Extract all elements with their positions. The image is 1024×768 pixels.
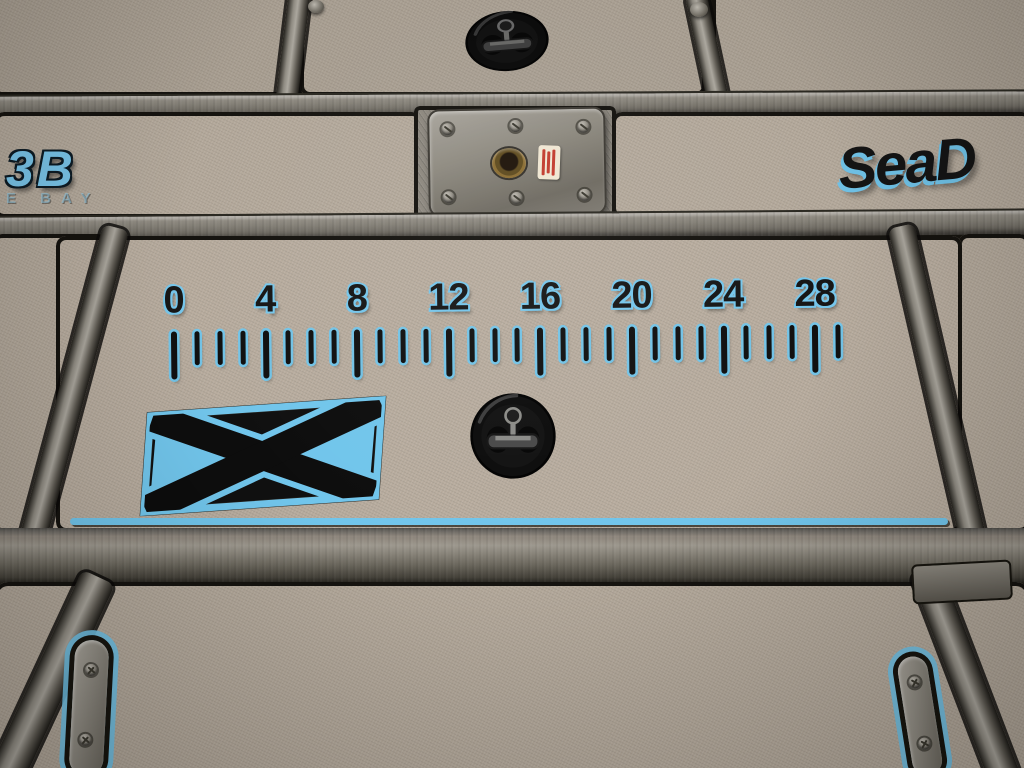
ruler-minor-tick [767, 325, 772, 359]
ruler-minor-tick [194, 331, 199, 365]
screw-icon [443, 191, 455, 203]
ruler-number: 28 [794, 273, 835, 316]
screw-icon [85, 664, 98, 677]
ruler-major-tick [263, 330, 270, 378]
deck-panel-top-left [0, 0, 292, 96]
screw-icon [509, 120, 521, 132]
hinge-strip-left [68, 639, 109, 768]
screw-icon [511, 192, 523, 204]
ruler-labels: 0481216202428 [173, 273, 837, 324]
ruler-major-tick [629, 327, 636, 375]
ruler-ticks [174, 325, 839, 392]
ruler-minor-tick [744, 325, 749, 359]
topo-contours [0, 0, 292, 96]
ruler-major-tick [812, 325, 819, 373]
ruler-number: 0 [163, 279, 184, 322]
topo-contours [712, 0, 1024, 96]
ruler-minor-tick [606, 327, 611, 361]
ruler-major-tick [720, 326, 727, 374]
ruler-number: 16 [520, 275, 561, 318]
ruler-minor-tick [217, 331, 222, 365]
ruler-minor-tick [675, 326, 680, 360]
ruler-number: 20 [611, 274, 652, 317]
ruler-major-tick [171, 331, 178, 379]
ruler-minor-tick [492, 328, 497, 362]
ruler-minor-tick [561, 327, 566, 361]
boat-deck-photo: 3B VE BAY SeaD [0, 0, 1024, 768]
deck-panel-top-right [712, 0, 1024, 96]
seat-base-recess [414, 106, 616, 220]
screw-icon [578, 189, 590, 201]
ruler-minor-tick [309, 330, 314, 364]
seat-base-plate [427, 106, 607, 217]
ruler-number: 8 [346, 277, 367, 320]
fish-ruler: 0481216202428 [173, 273, 838, 398]
deck-panel-main-ruler: 0481216202428 [56, 236, 962, 532]
ruler-minor-tick [423, 329, 428, 363]
center-hatch-t-handle-latch [468, 392, 558, 480]
ruler-minor-tick [584, 327, 589, 361]
screw-icon [441, 123, 453, 135]
ruler-minor-tick [790, 325, 795, 359]
deck-panel-bottom [0, 582, 1024, 768]
panel-edge-contour-line [70, 518, 948, 525]
ruler-minor-tick [515, 328, 520, 362]
frame-step-bottom-right [911, 559, 1013, 604]
seam-pin-knob [690, 2, 708, 17]
ruler-major-tick [446, 329, 453, 377]
ruler-number: 12 [428, 276, 469, 319]
ruler-minor-tick [377, 329, 382, 363]
ruler-number: 4 [255, 278, 276, 321]
deck-panel-top-center [300, 0, 706, 96]
warning-sticker [537, 145, 560, 180]
ruler-minor-tick [286, 330, 291, 364]
deck-panel-brand: SeaD [612, 112, 1024, 218]
deck-panel-bay-hatch: 3B VE BAY [0, 112, 422, 218]
x-brand-logo [130, 395, 396, 516]
ruler-major-tick [537, 328, 544, 376]
ruler-minor-tick [332, 330, 337, 364]
bay-sublabel: VE BAY [0, 190, 100, 207]
topo-contours [0, 582, 1024, 768]
screw-icon [918, 737, 932, 751]
screw-icon [79, 734, 92, 747]
ruler-minor-tick [835, 324, 840, 358]
ruler-major-tick [354, 330, 361, 378]
screw-icon [908, 676, 922, 690]
pedestal-socket [492, 148, 527, 179]
ruler-minor-tick [652, 326, 657, 360]
brand-logo-partial: SeaD [835, 124, 977, 203]
ruler-number: 24 [703, 274, 744, 317]
ruler-minor-tick [400, 329, 405, 363]
top-hatch-t-handle-latch [461, 4, 552, 77]
deck-seam-horizontal-3 [0, 528, 1024, 586]
ruler-minor-tick [240, 331, 245, 365]
screw-icon [577, 121, 589, 133]
ruler-minor-tick [469, 328, 474, 362]
seam-pin-knob [308, 0, 324, 13]
ruler-minor-tick [698, 326, 703, 360]
